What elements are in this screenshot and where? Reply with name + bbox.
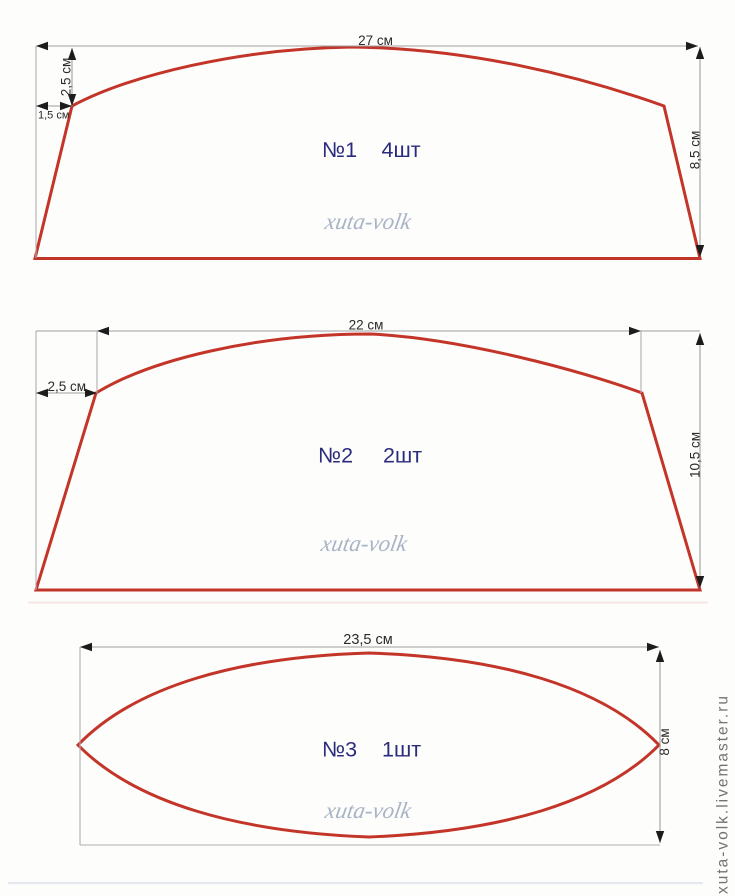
svg-text:4шт: 4шт [382,138,421,162]
svg-text:2,5 см: 2,5 см [59,58,74,97]
svg-text:xuta-volk: xuta-volk [318,531,410,557]
svg-text:2,5 см: 2,5 см [48,379,87,394]
svg-text:23,5 см: 23,5 см [343,632,392,648]
svg-text:№1: №1 [322,138,357,162]
svg-text:xuta-volk: xuta-volk [322,209,414,235]
svg-text:№2: №2 [318,444,353,468]
svg-text:2шт: 2шт [383,444,422,468]
svg-text:№3: №3 [322,738,357,762]
svg-text:8 см: 8 см [657,728,672,755]
svg-text:xuta-volk: xuta-volk [322,798,414,824]
svg-text:10,5 см: 10,5 см [688,432,703,478]
svg-text:27 см: 27 см [358,33,393,48]
svg-text:22 см: 22 см [349,318,384,333]
svg-text:xuta-volk.livemaster.ru: xuta-volk.livemaster.ru [715,696,732,894]
svg-text:8,5 см: 8,5 см [688,131,703,170]
svg-text:1,5 см: 1,5 см [38,110,69,122]
svg-text:1шт: 1шт [382,738,421,762]
